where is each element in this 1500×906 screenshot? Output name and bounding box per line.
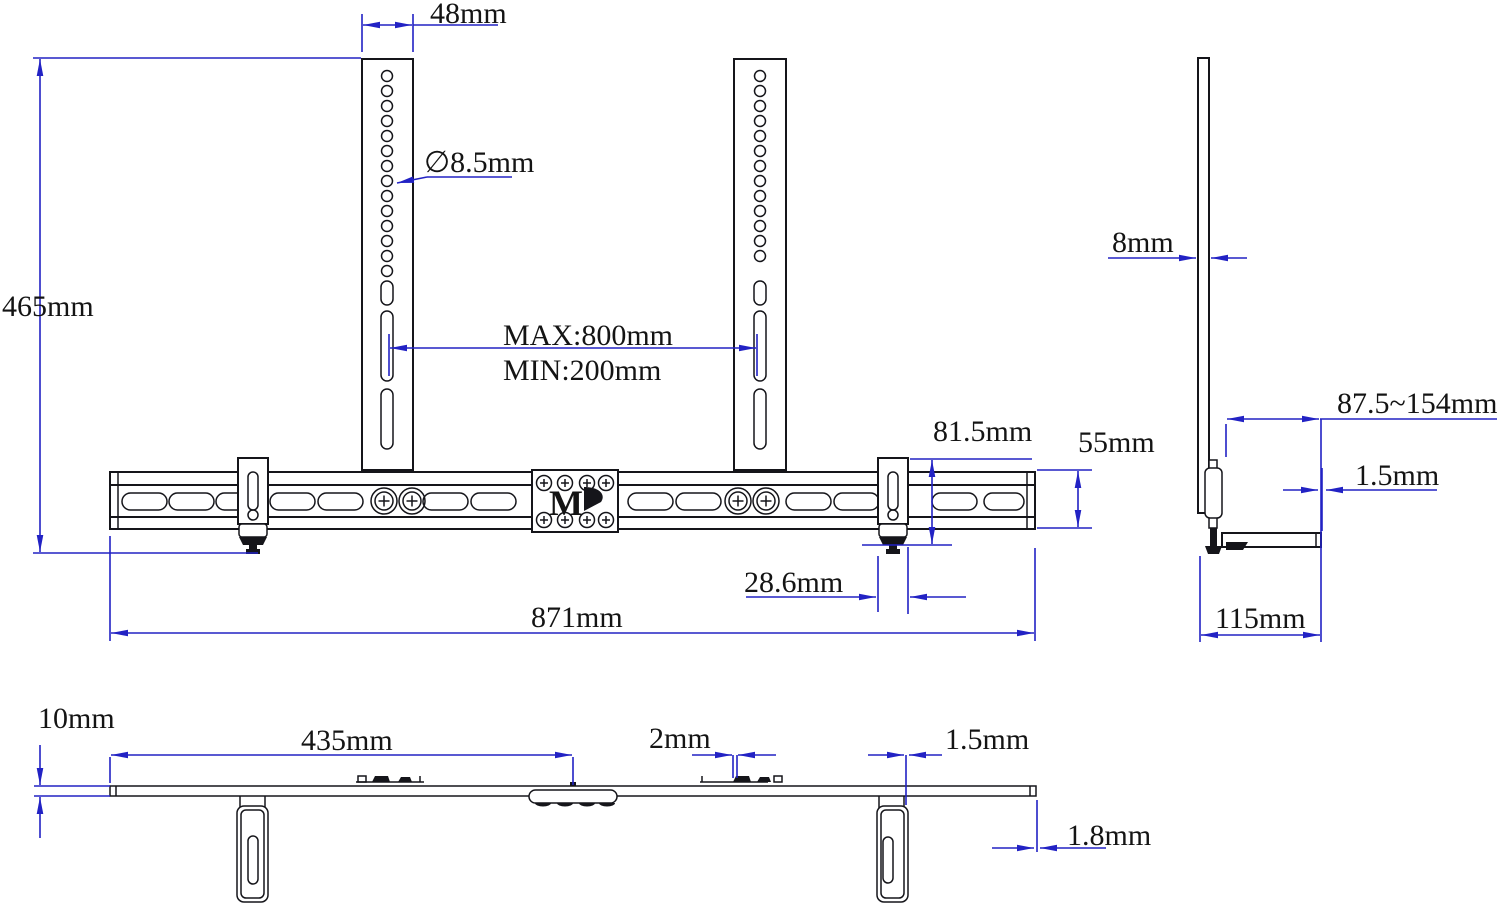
dimension-depth-range: 87.5~154mm — [1226, 387, 1497, 457]
front-view: M 48mm 465mm ∅8.5mm M — [2, 0, 1155, 641]
dimension-end-thickness: 1.8mm — [992, 800, 1151, 852]
logo-plate: M — [532, 470, 618, 532]
center-offset-label: 435mm — [301, 724, 393, 757]
side-bottom-arm — [1222, 533, 1321, 550]
bar-thickness-label: 10mm — [38, 702, 115, 735]
left-clamp — [238, 458, 268, 554]
plate-thickness-label: 8mm — [1112, 226, 1174, 259]
clamp-width-label: 28.6mm — [744, 566, 843, 599]
dimension-clamp-width: 28.6mm — [744, 547, 966, 614]
arm-width-label: 48mm — [430, 0, 507, 30]
right-clamp — [878, 458, 908, 554]
dimension-base-depth: 115mm — [1200, 419, 1321, 642]
dimension-lip-thickness: 1.5mm — [1283, 459, 1439, 531]
dimension-arm-width: 48mm — [362, 0, 507, 52]
total-height-label: 465mm — [2, 290, 94, 323]
rail-height-label: 55mm — [1078, 426, 1155, 459]
dimension-plate-thickness: 8mm — [1108, 226, 1247, 259]
side-clamp — [1205, 460, 1222, 554]
dimension-bar-thickness: 10mm — [34, 702, 115, 838]
end-thickness-label: 1.8mm — [1067, 819, 1151, 852]
tab-gap-label: 2mm — [649, 722, 711, 755]
technical-drawing-page: M 48mm 465mm ∅8.5mm M — [0, 0, 1500, 906]
total-width-label: 871mm — [531, 601, 623, 634]
bottom-right-bracket — [877, 796, 908, 902]
right-vesa-arm — [734, 59, 786, 470]
hole-diameter-label: ∅8.5mm — [424, 146, 534, 179]
depth-range-label: 87.5~154mm — [1337, 387, 1497, 420]
dimension-center-offset: 435mm — [110, 724, 573, 785]
dimension-vesa-spread: MAX:800mm MIN:200mm — [389, 319, 757, 387]
clamp-height-label: 81.5mm — [933, 415, 1032, 448]
bracket-gap-label: 1.5mm — [945, 723, 1029, 756]
vesa-min-label: MIN:200mm — [503, 354, 661, 387]
dimension-rail-height: 55mm — [1037, 426, 1155, 528]
brand-logo-letter: M — [549, 483, 583, 523]
dimension-tab-gap: 2mm — [649, 722, 776, 778]
technical-drawing: M 48mm 465mm ∅8.5mm M — [0, 0, 1500, 906]
left-vesa-arm — [362, 59, 413, 470]
bottom-view: 10mm 435mm 2mm 1.5mm — [34, 702, 1151, 902]
base-depth-label: 115mm — [1215, 602, 1306, 635]
bottom-left-bracket — [237, 796, 268, 902]
lip-thickness-label: 1.5mm — [1355, 459, 1439, 492]
vesa-max-label: MAX:800mm — [503, 319, 673, 352]
bottom-left-clips — [356, 776, 424, 782]
bottom-right-clips — [700, 776, 782, 782]
side-wall-plate — [1198, 58, 1209, 513]
side-view: 8mm 87.5~154mm 1.5mm 115mm — [1108, 58, 1497, 642]
dimension-hole-diameter: ∅8.5mm — [397, 146, 534, 183]
